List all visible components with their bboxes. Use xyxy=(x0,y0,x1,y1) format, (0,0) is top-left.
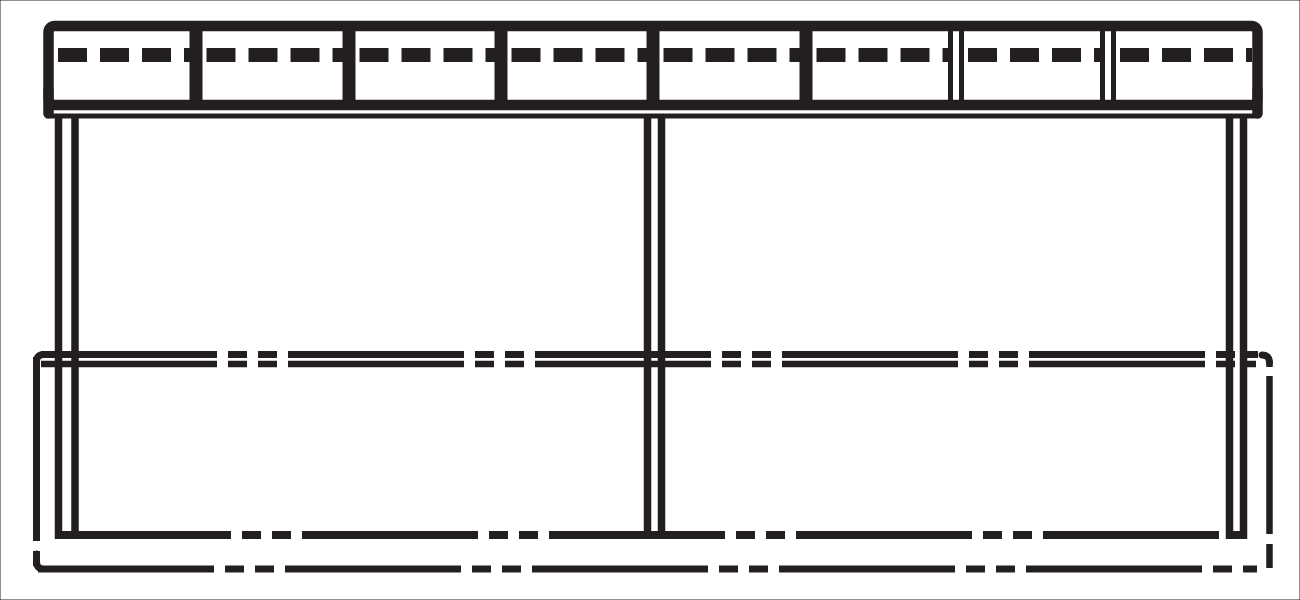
canopy-elevation-page xyxy=(0,0,1300,600)
canopy-elevation-drawing xyxy=(0,0,1300,600)
